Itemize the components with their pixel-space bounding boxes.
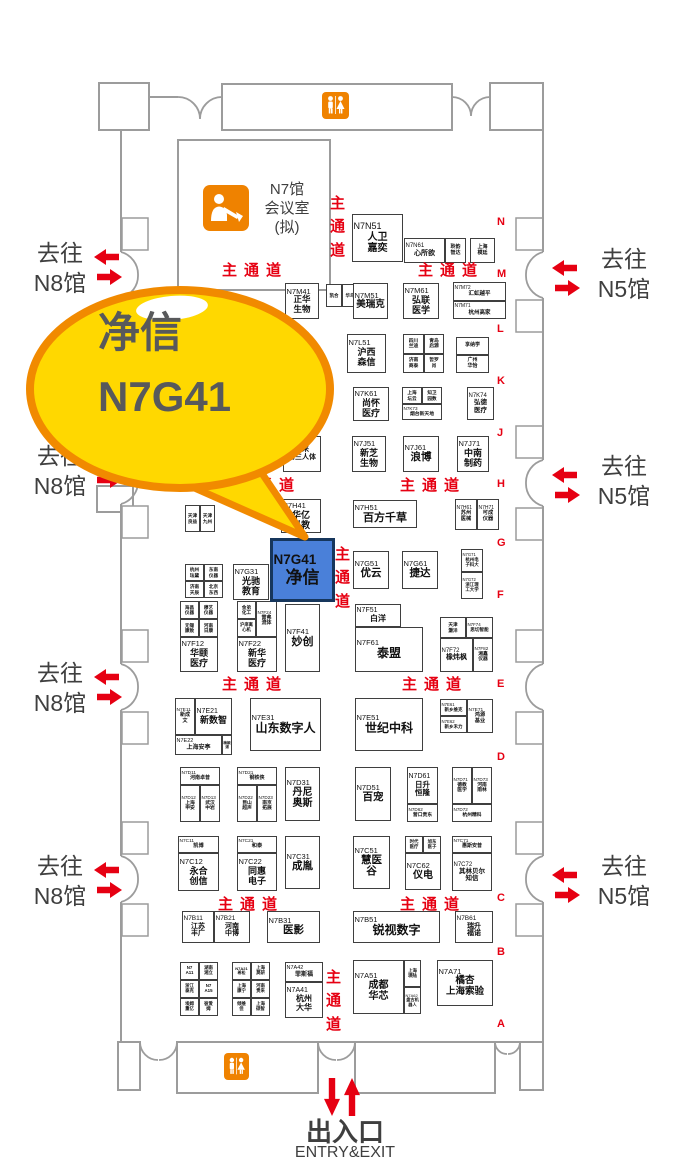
booth[interactable]: 浙江泰克 bbox=[180, 980, 199, 998]
booth[interactable]: 旭东医子 bbox=[423, 836, 441, 853]
booth-N7E21[interactable]: N7E21新数智 bbox=[195, 698, 232, 735]
booth-N7E71[interactable]: N7E71鸿源基业 bbox=[467, 699, 493, 733]
booth-N7D71[interactable]: N7D71德教医学 bbox=[452, 767, 472, 804]
booth-N7B31[interactable]: N7B31医影 bbox=[267, 911, 320, 943]
booth-N7E11[interactable]: N7E11新成文 bbox=[175, 698, 195, 735]
booth-N7F24[interactable]: N7F24雷弗流体 bbox=[256, 601, 277, 637]
booth-N7A51[interactable]: N7A51成都华芯 bbox=[353, 960, 404, 1014]
booth-N7A42[interactable]: N7A42菲斯福 bbox=[285, 962, 323, 982]
booth-N7D62[interactable]: N7D62营口贵东 bbox=[407, 804, 438, 822]
floorplan-n7-hall: N7馆 会议室 (拟) N7N51人卫嘉奕N7N61心所欲聆韵智达上海模廷凯合华… bbox=[0, 0, 700, 1166]
booth-N7D22[interactable]: N7D22昆山超声 bbox=[237, 785, 257, 822]
callout-bubble[interactable]: 净信 N7G41 bbox=[10, 281, 350, 555]
gate-label-to-n8: 去往N8馆 bbox=[22, 851, 98, 911]
main-aisle-label: 主通道 bbox=[402, 673, 468, 694]
booth[interactable]: 上海莫研 bbox=[251, 962, 270, 980]
row-letter-C: C bbox=[497, 892, 505, 904]
conference-presenter-icon bbox=[203, 185, 249, 231]
booth-N7F61[interactable]: N7F61泰盟 bbox=[355, 627, 423, 672]
booth[interactable]: 湖南湘立 bbox=[199, 962, 218, 980]
entry-exit-label-en: ENTRY&EXIT bbox=[275, 1144, 415, 1162]
booth[interactable]: N7A21希松 bbox=[232, 962, 251, 980]
booth-N7C71[interactable]: N7C71惠斯安普 bbox=[452, 836, 492, 853]
row-letter-E: E bbox=[497, 678, 504, 690]
main-aisle-label-vertical: 主通道 bbox=[329, 192, 346, 262]
main-aisle-label: 主通道 bbox=[222, 259, 288, 280]
booth-N7H51[interactable]: N7H51百方千草 bbox=[353, 500, 417, 528]
booth[interactable]: N7A15 bbox=[199, 980, 218, 998]
booth[interactable]: 济南商泰 bbox=[403, 354, 424, 373]
booth-N7B11[interactable]: N7B11江苏丰广 bbox=[182, 911, 214, 943]
booth[interactable]: 河南贵来 bbox=[251, 980, 270, 998]
booth[interactable]: 无锡康致 bbox=[180, 619, 199, 637]
row-letter-N: N bbox=[497, 216, 505, 228]
booth-N7B21[interactable]: N7B21河南中博 bbox=[214, 911, 250, 943]
gate-label-to-n5: 去往N5馆 bbox=[586, 244, 662, 304]
booth[interactable]: N7A11 bbox=[180, 962, 199, 980]
booth[interactable]: 埃姆重亿 bbox=[180, 998, 199, 1016]
booth-N7D11[interactable]: N7D11河南卓普 bbox=[180, 767, 220, 785]
booth-N7J61[interactable]: N7J61浪博 bbox=[403, 436, 439, 472]
booth[interactable]: 哲罗肖 bbox=[424, 354, 444, 373]
booth-N7M72[interactable]: N7M72汇虹越平 bbox=[453, 282, 506, 301]
callout-booth-number: N7G41 bbox=[98, 373, 231, 421]
booth-N7C22[interactable]: N7C22同惠电子 bbox=[237, 853, 277, 891]
booth[interactable]: 青岛启源 bbox=[424, 334, 444, 354]
booth-N7D61[interactable]: N7D61日升恒隆 bbox=[407, 767, 438, 804]
booth-N7D31[interactable]: N7D31丹尼奥斯 bbox=[285, 767, 320, 821]
booth-N7F51[interactable]: N7F51白洋 bbox=[355, 604, 401, 627]
booth-N7F74[interactable]: N7F74思切智能 bbox=[466, 617, 493, 638]
booth-N7E51[interactable]: N7E51世纪中科 bbox=[355, 698, 423, 751]
booth-N7E61[interactable]: N7E61新乡维克 bbox=[440, 699, 467, 716]
main-aisle-label: 主通道 bbox=[400, 474, 466, 495]
main-aisle-label: 主通道 bbox=[400, 893, 466, 914]
booth-N7E62[interactable]: N7E62新乡禾力 bbox=[440, 716, 467, 733]
row-letter-H: H bbox=[497, 478, 505, 490]
booth-N7A41[interactable]: N7A41杭州大华 bbox=[285, 982, 323, 1018]
booth-N7D21[interactable]: N7D21钢铁侠 bbox=[237, 767, 277, 785]
main-aisle-label: 主通道 bbox=[218, 893, 284, 914]
booth-N7F72[interactable]: N7F72橡炜枫 bbox=[440, 638, 473, 672]
booth-N7G51[interactable]: N7G51优云 bbox=[353, 551, 389, 589]
booth-N7K73[interactable]: N7K73烟台新天地 bbox=[402, 404, 442, 420]
booth[interactable]: 知卫园数 bbox=[422, 387, 442, 404]
booth-N7F41[interactable]: N7F41妙创 bbox=[285, 604, 320, 672]
booth-N7C11[interactable]: N7C11凯博 bbox=[178, 836, 219, 853]
row-letter-A: A bbox=[497, 1018, 505, 1030]
booth-N7D73[interactable]: N7D73河南雨林 bbox=[472, 767, 492, 804]
booth-N7J71[interactable]: N7J71中南制药 bbox=[457, 436, 489, 472]
booth-N7G71[interactable]: N7G71杭州电子科大 bbox=[461, 549, 483, 572]
booth-N7M51[interactable]: N7M51美瑞克 bbox=[353, 283, 388, 319]
conference-room-label: N7馆 会议室 (拟) bbox=[248, 180, 326, 237]
booth-N7E31[interactable]: N7E31山东数字人 bbox=[250, 698, 321, 751]
booth[interactable]: 河南日康 bbox=[199, 619, 218, 637]
booth-N7N51[interactable]: N7N51人卫嘉奕 bbox=[352, 214, 403, 262]
row-letter-L: L bbox=[497, 323, 504, 335]
callout-exhibitor-name: 净信 bbox=[98, 299, 182, 360]
booth-N7G61[interactable]: N7G61捷达 bbox=[402, 551, 438, 589]
booth-N7B51[interactable]: N7B51锐视数字 bbox=[353, 911, 440, 943]
booth-N7C31[interactable]: N7C31成胤 bbox=[285, 836, 320, 889]
restroom-icon bbox=[322, 92, 349, 119]
row-letter-J: J bbox=[497, 427, 503, 439]
booth-N7E22[interactable]: N7E22上海安亭 bbox=[175, 735, 222, 755]
booth-N7A71[interactable]: N7A71橘杏上海索验 bbox=[437, 960, 493, 1006]
booth[interactable]: 北京东西 bbox=[204, 581, 223, 598]
booth[interactable]: 济南天辰 bbox=[185, 581, 204, 598]
booth-N7K74[interactable]: N7K74弘德医疗 bbox=[467, 387, 494, 420]
booth-N7G31[interactable]: N7G31光驰教育 bbox=[233, 564, 269, 600]
booth-N7D13[interactable]: N7D13武汉中岩 bbox=[200, 785, 220, 822]
booth-N7A62[interactable]: N7A62盘古机器人 bbox=[404, 987, 421, 1014]
booth-N7H71[interactable]: N7H71可成仪器 bbox=[477, 499, 499, 530]
row-letter-K: K bbox=[497, 375, 505, 387]
gate-label-to-n5: 去往N5馆 bbox=[586, 451, 662, 511]
booth[interactable]: 东南仪器 bbox=[204, 564, 223, 581]
booth[interactable]: 沪庠离心机 bbox=[237, 619, 256, 637]
booth-N7C12[interactable]: N7C12永合创信 bbox=[178, 853, 219, 891]
booth[interactable]: 享纳学 bbox=[456, 337, 489, 355]
booth-N7B61[interactable]: N7B61瑞升福诺 bbox=[455, 911, 493, 943]
booth[interactable]: 金弟化工 bbox=[237, 601, 256, 619]
booth-N7G72[interactable]: N7G72浙江理工大学 bbox=[461, 572, 483, 599]
booth[interactable]: 穆艺仪器 bbox=[199, 601, 218, 619]
row-letter-M: M bbox=[497, 268, 506, 280]
booth[interactable]: 倾维佳 bbox=[232, 998, 251, 1016]
booth[interactable]: 梅颖浦 bbox=[222, 735, 232, 755]
booth-N7M61[interactable]: N7M61弘联医学 bbox=[403, 283, 439, 319]
row-letter-B: B bbox=[497, 946, 505, 958]
booth[interactable]: 上海康宁 bbox=[232, 980, 251, 998]
booth[interactable]: 杭州珐黛 bbox=[185, 564, 204, 581]
booth-N7D72[interactable]: N7D72杭州精科 bbox=[452, 804, 492, 822]
booth-N7M71[interactable]: N7M71杭州高家 bbox=[453, 301, 506, 319]
booth-N7D51[interactable]: N7D51百宠 bbox=[355, 767, 391, 821]
row-letter-G: G bbox=[497, 537, 506, 549]
gate-label-to-n8: 去往N8馆 bbox=[22, 658, 98, 718]
booth[interactable]: 彼爱姆 bbox=[199, 998, 218, 1016]
booth-N7C21[interactable]: N7C21和泰 bbox=[237, 836, 277, 853]
booth-N7D23[interactable]: N7D23南京拓展 bbox=[257, 785, 277, 822]
booth-N7C72[interactable]: N7C72其林贝尔知信 bbox=[452, 853, 492, 891]
booth[interactable]: 上海硕智 bbox=[251, 998, 270, 1016]
booth-N7F12[interactable]: N7F12华颐医疗 bbox=[180, 637, 218, 672]
main-aisle-label: 主通道 bbox=[222, 673, 288, 694]
main-aisle-label: 主通道 bbox=[418, 259, 484, 280]
row-letter-F: F bbox=[497, 589, 504, 601]
booth-N7K61[interactable]: N7K61尚怀医疗 bbox=[353, 387, 389, 421]
booth-N7J51[interactable]: N7J51新芝生物 bbox=[352, 436, 386, 472]
booth[interactable]: 海昌仪器 bbox=[180, 601, 199, 619]
row-letter-D: D bbox=[497, 751, 505, 763]
booth-N7C62[interactable]: N7C62仪电 bbox=[405, 853, 441, 890]
booth-N7D12[interactable]: N7D12上海申安 bbox=[180, 785, 200, 822]
booth-N7F22[interactable]: N7F22新华医疗 bbox=[237, 637, 277, 672]
booth[interactable]: 广州华怡 bbox=[456, 355, 489, 373]
booth-N7H61[interactable]: N7H61苏州医械 bbox=[455, 499, 477, 530]
booth[interactable]: 上海坛云 bbox=[402, 387, 422, 404]
booth[interactable]: 天津灏洋 bbox=[440, 617, 466, 638]
booth-N7F82[interactable]: N7F82湘鑫仪器 bbox=[473, 638, 493, 672]
booth[interactable]: 四川兰迪 bbox=[403, 334, 424, 354]
booth[interactable]: 时代医疗 bbox=[405, 836, 423, 853]
restroom-icon bbox=[224, 1053, 249, 1080]
booth-N7C51[interactable]: N7C51慧医谷 bbox=[353, 836, 390, 889]
gate-label-to-n5: 去往N5馆 bbox=[586, 851, 662, 911]
booth[interactable]: 上海瑛陆 bbox=[404, 960, 421, 987]
booth-N7L51[interactable]: N7L51沪西森信 bbox=[347, 334, 386, 373]
main-aisle-label-vertical: 主通道 bbox=[325, 966, 342, 1036]
